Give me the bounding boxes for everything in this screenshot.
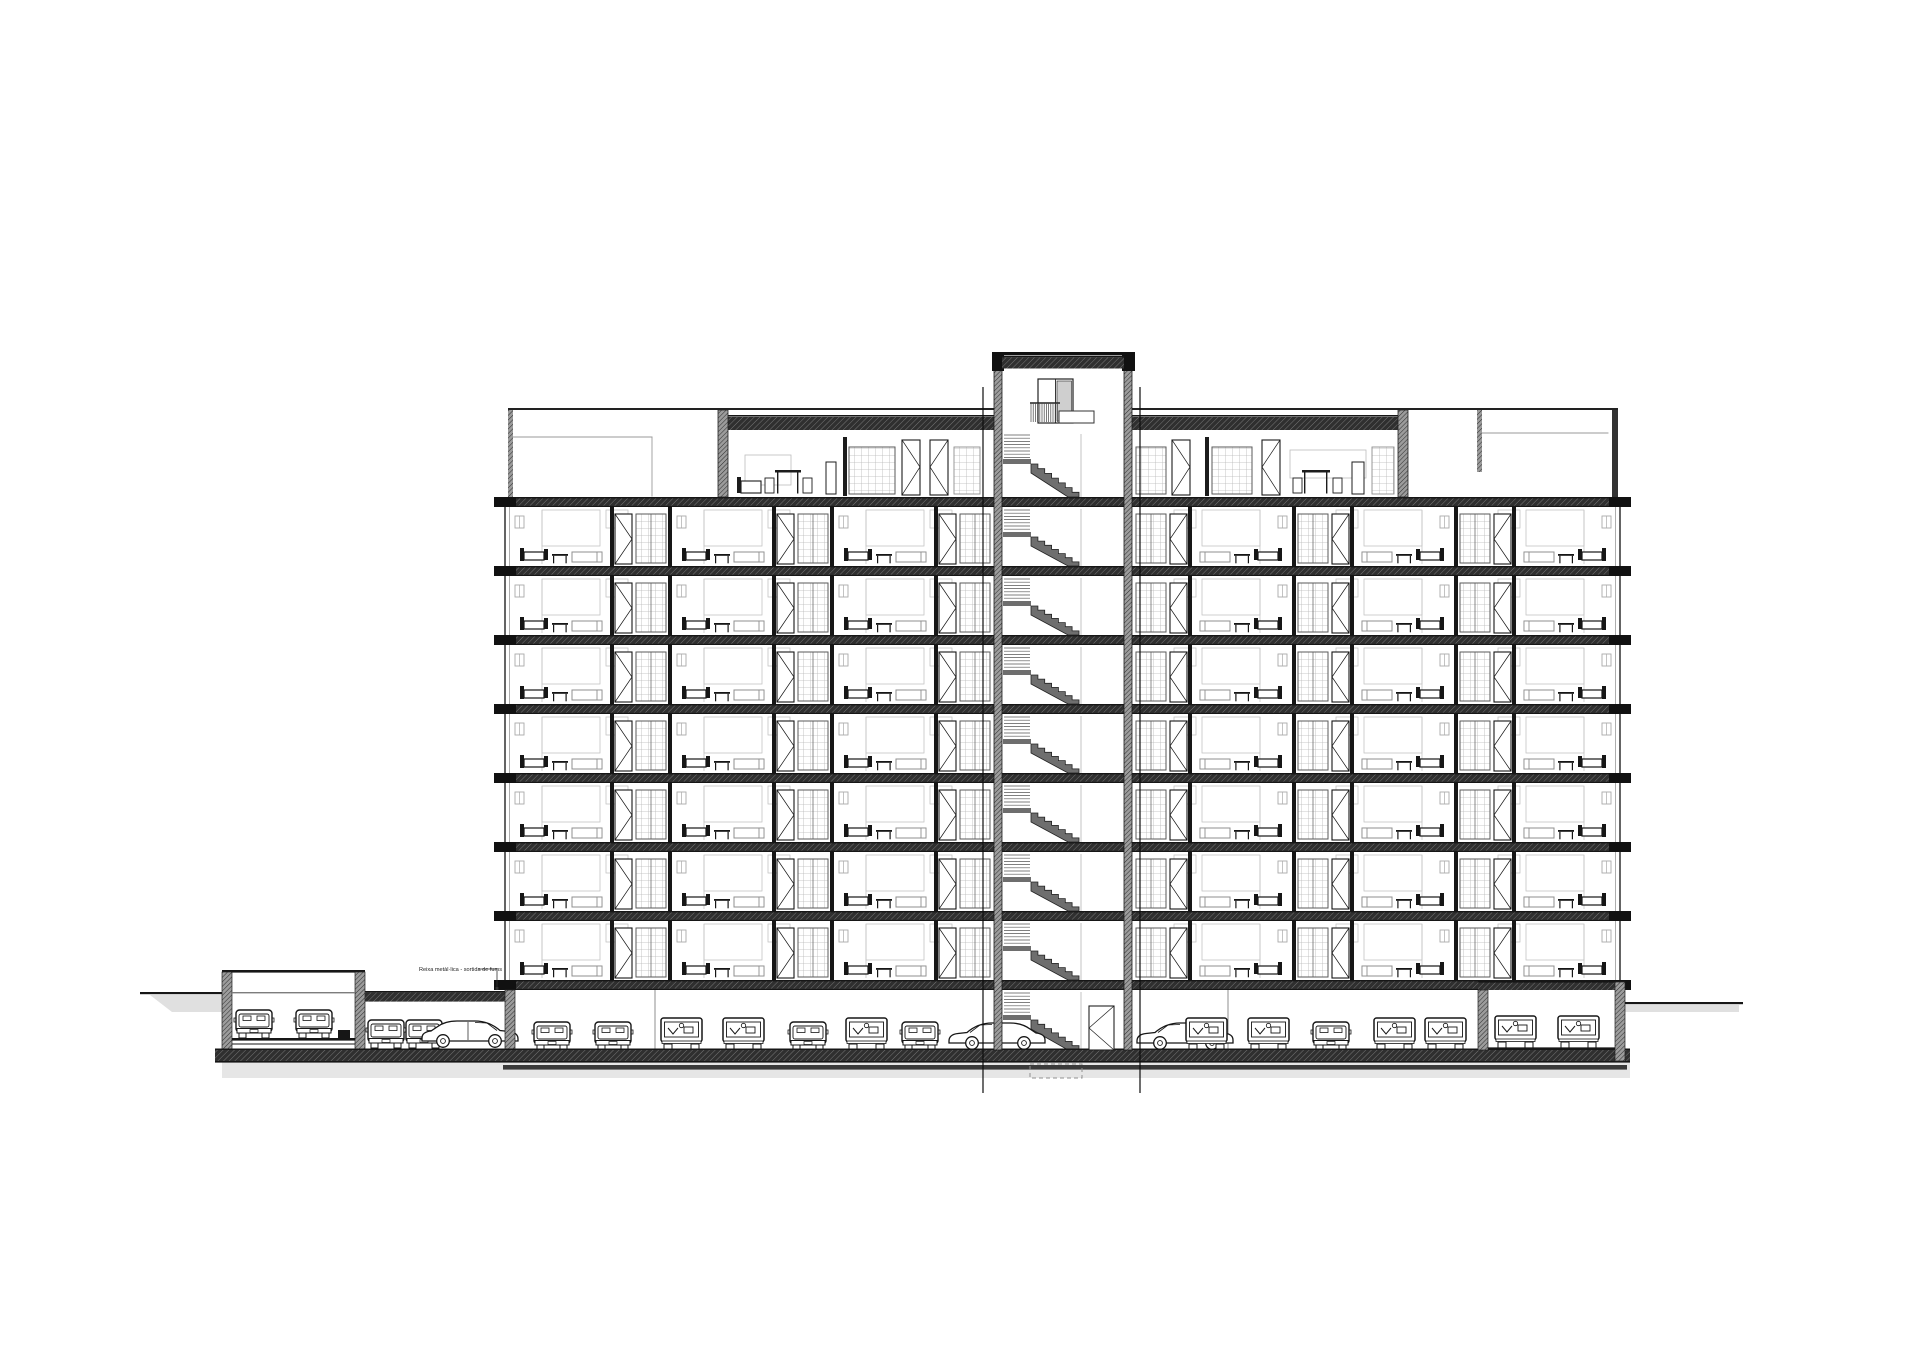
ground-line-right	[1625, 1002, 1743, 1004]
terrace-post-right	[1477, 410, 1482, 472]
foundation-slab	[215, 1050, 1630, 1061]
ground-line-left	[140, 992, 222, 994]
tower-wall-left	[994, 354, 1002, 1050]
stair-core-door	[1089, 1006, 1114, 1050]
terrace-parapet-right	[1612, 410, 1618, 497]
building-section-drawing: Reixa metàl·lica - sortida de fums	[0, 0, 1920, 1358]
tower-wall-right	[1124, 354, 1132, 1050]
attic-left-wall	[718, 410, 728, 497]
terrace-parapet-left	[508, 410, 513, 497]
basement-wall-left	[505, 990, 515, 1050]
drawing-sheet: Reixa metàl·lica - sortida de fums	[0, 0, 1920, 1358]
attic-right-wall	[1398, 410, 1408, 497]
annotation-label: Reixa metàl·lica - sortida de fums	[419, 967, 502, 973]
